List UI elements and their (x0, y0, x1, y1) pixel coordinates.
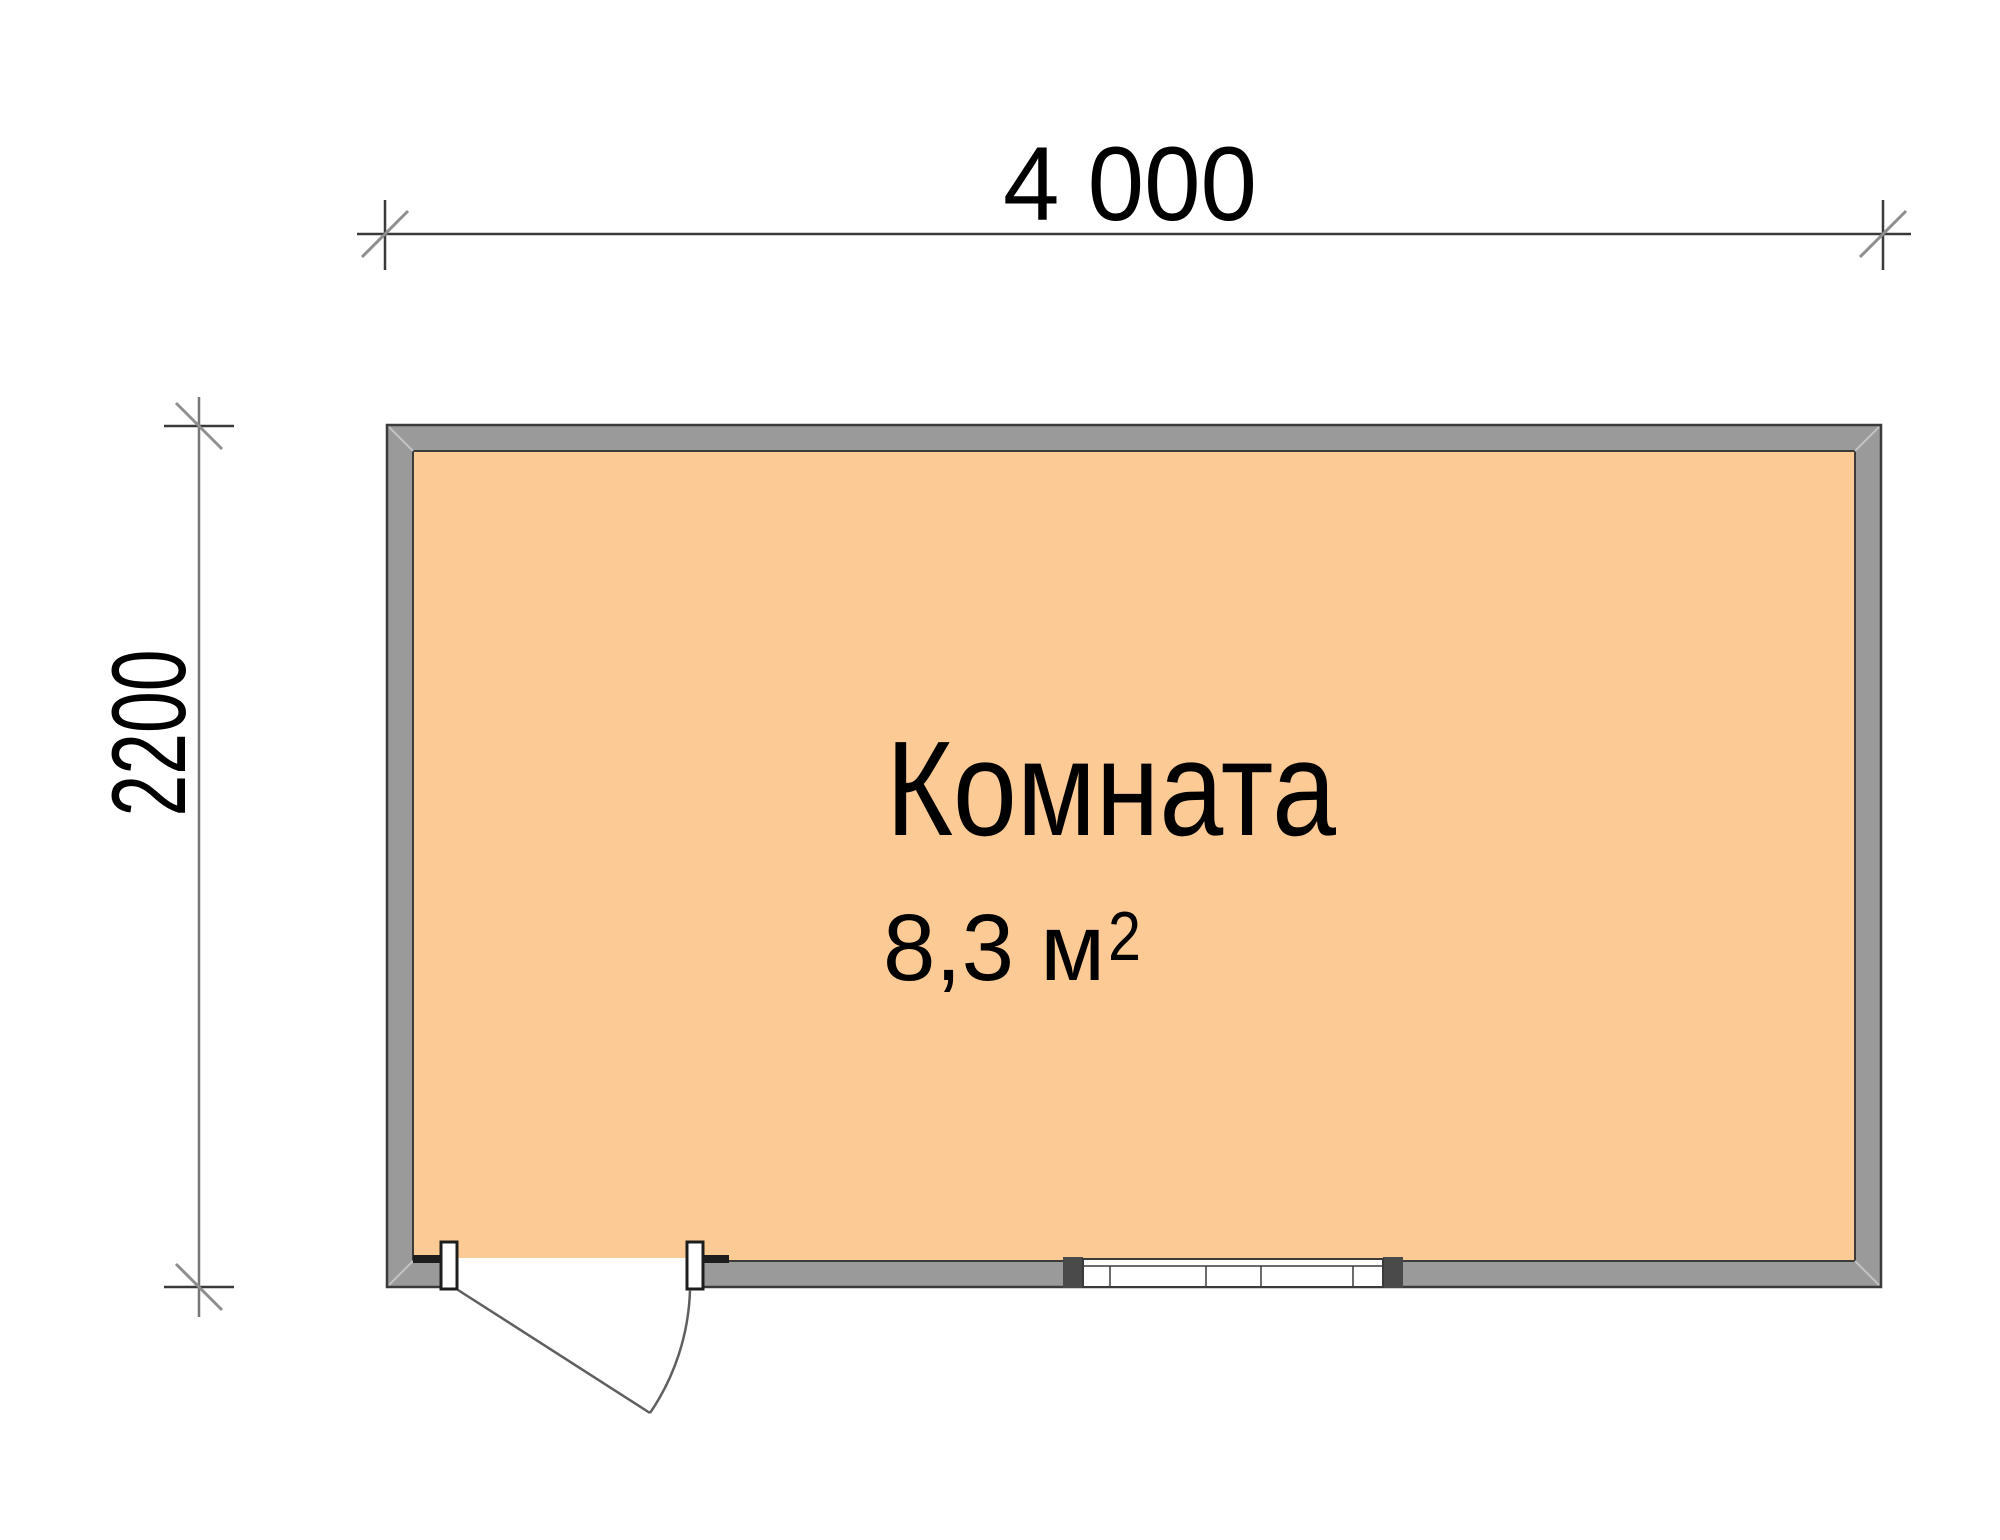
door-swing-arc (650, 1290, 690, 1413)
window-wall-cap-right (1383, 1257, 1403, 1288)
window-frame (1083, 1259, 1383, 1287)
window (1063, 1257, 1403, 1288)
door (413, 1242, 729, 1413)
room-area-superscript: 2 (1108, 897, 1141, 975)
room-area-label: 8,3 м (883, 895, 1105, 1001)
door-opening (457, 1258, 687, 1291)
dimension-width: 4 000 (357, 126, 1911, 270)
door-jamb-right (687, 1242, 703, 1289)
dimension-height: 2200 (91, 397, 234, 1317)
floor-plan-canvas: 4 000 2200 Комната 8,3 м 2 (0, 0, 2000, 1540)
dimension-width-label: 4 000 (1003, 126, 1257, 243)
dimension-height-label: 2200 (91, 650, 208, 817)
window-wall-cap-left (1063, 1257, 1083, 1288)
door-lintel-stub-left (413, 1255, 441, 1263)
door-jamb-left (441, 1242, 457, 1289)
door-leaf (458, 1290, 650, 1413)
floor-plan-drawing: 4 000 2200 Комната 8,3 м 2 (0, 0, 2000, 1540)
room-name-label: Комната (886, 713, 1337, 864)
door-lintel-stub-right (702, 1255, 729, 1263)
